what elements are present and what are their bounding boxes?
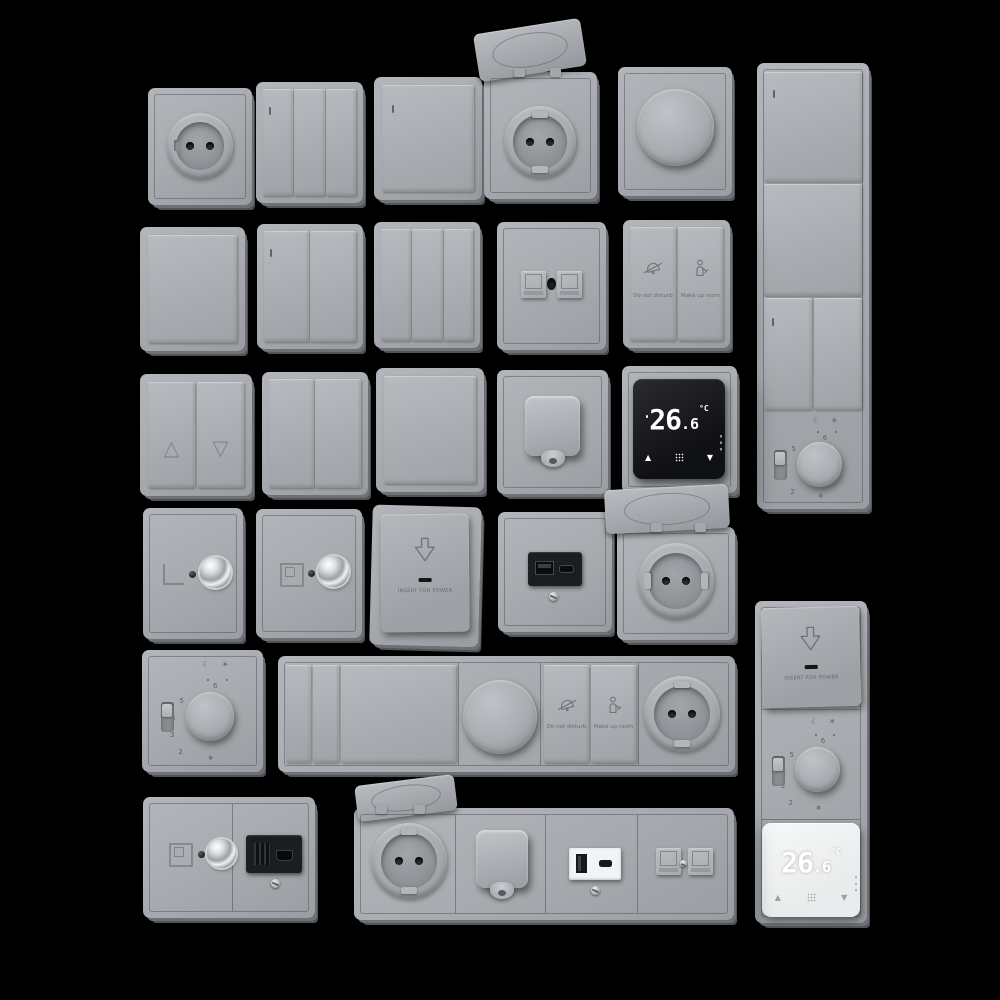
usb-module-white <box>569 848 621 880</box>
ground-clip <box>532 111 548 118</box>
usb-a-tongue <box>578 856 581 871</box>
rocker-do-not-disturb: Do not disturb <box>544 665 589 763</box>
card-slot <box>805 665 818 669</box>
mode-dot <box>817 431 819 433</box>
screw-slot <box>272 881 279 885</box>
pin-hole <box>186 142 194 150</box>
socket-side-slot <box>174 140 179 151</box>
thermostat-dial <box>797 442 842 487</box>
mode-dot <box>815 734 817 736</box>
card-slot <box>419 578 432 582</box>
rocker-label: Do not disturb <box>632 293 674 300</box>
square-emboss <box>169 843 193 867</box>
card-holder-label: INSERT FOR POWER <box>381 588 469 595</box>
analog-thermostat: ☾ ☀ 6 5 4 3 2 ❄ <box>150 656 255 766</box>
spout-hole <box>498 890 506 896</box>
card-pocket: INSERT FOR POWER <box>761 606 862 709</box>
rocker-label: Make up room <box>593 724 635 731</box>
usb-a-tongue <box>538 564 551 568</box>
do-not-disturb-icon <box>641 257 665 279</box>
dial-number: 6 <box>213 682 217 690</box>
lid-hinge <box>414 805 425 814</box>
pin-hole <box>662 577 670 585</box>
jack-step <box>524 291 543 295</box>
digital-thermostat-black: 26.6°C ▲▼ <box>633 379 725 479</box>
day-mode-icon: ☀ <box>221 660 228 669</box>
plate-switch-1gang-b <box>376 368 484 492</box>
screw <box>591 886 600 895</box>
scene-switch-socket-collection: ☾ ☀ 6 5 4 3 2 ❄ Do <box>0 0 1000 1000</box>
socket-recess <box>654 686 710 742</box>
temp-separator: . <box>681 415 690 433</box>
screw-slot <box>681 863 686 866</box>
temperature-display: 26.6°C <box>762 846 860 879</box>
slider-lever <box>162 704 172 717</box>
ground-clip <box>532 166 548 173</box>
menu-dots-icon <box>675 453 684 462</box>
rocker-large <box>764 72 862 182</box>
do-not-disturb-icon <box>555 694 579 716</box>
panel-horizontal-multigang: Do not disturb Make up room <box>278 656 735 772</box>
panel-vertical-hotel: INSERT FOR POWER ☾ ☀ 6 5 4 3 2 ❄ 26.6°C … <box>755 601 867 923</box>
pin-hole <box>415 857 423 865</box>
rocker <box>315 379 361 488</box>
chrome-button <box>200 557 231 588</box>
temp-up-icon: ▲ <box>775 893 781 902</box>
dial-number: 6 <box>823 434 827 442</box>
square-emboss <box>280 563 304 587</box>
cable-outlet-spout <box>476 830 528 888</box>
plate-blank <box>140 227 245 351</box>
data-jack <box>688 848 713 875</box>
ground-clip <box>674 681 690 688</box>
indicator-mark <box>269 107 271 115</box>
usb-a-port <box>576 854 587 873</box>
dial-number: 5 <box>789 751 793 759</box>
round-socket <box>167 113 233 179</box>
lid-emboss <box>490 27 570 73</box>
temp-integer: 26 <box>649 403 681 436</box>
mode-slider <box>772 756 785 786</box>
lid-hinge <box>695 523 706 532</box>
side-vents <box>720 435 723 452</box>
plate-dual-data-outlet <box>497 222 606 350</box>
analog-thermostat: ☾ ☀ 6 5 4 3 2 ❄ <box>762 713 860 815</box>
dial-number: 2 <box>790 488 794 496</box>
blinds-up-icon: △ <box>163 436 179 460</box>
ground-clip <box>674 740 690 747</box>
rocker <box>326 89 356 196</box>
hdmi-port <box>276 850 293 861</box>
temp-down-icon: ▼ <box>841 893 847 902</box>
temp-unit: °C <box>831 847 841 856</box>
indicator-mark <box>773 90 775 98</box>
hdmi-module-black <box>246 835 302 873</box>
plate-key-button-b <box>256 509 362 638</box>
plate-blinds-switch: △ ▽ <box>140 374 252 496</box>
temp-unit: °C <box>699 404 709 413</box>
module-seam <box>762 819 860 820</box>
rocker <box>294 89 325 196</box>
jack-step <box>659 868 678 872</box>
temp-up-icon: ▲ <box>645 453 651 462</box>
rocker <box>764 298 812 410</box>
mode-dot <box>835 431 837 433</box>
rocker <box>263 89 293 196</box>
rocker <box>444 229 473 341</box>
pin-hole <box>206 142 214 150</box>
plate-key-button-a <box>143 508 243 639</box>
chrome-button <box>207 839 236 868</box>
digital-thermostat-white: 26.6°C ▲▼ <box>762 823 860 917</box>
chrome-button <box>318 556 349 587</box>
plate-cable-outlet <box>497 370 608 494</box>
dial-number: 2 <box>788 799 792 807</box>
module-seam <box>540 663 541 765</box>
slider-lever <box>775 452 785 465</box>
pin-hole <box>546 138 554 146</box>
side-vents <box>855 876 858 893</box>
day-mode-icon: ☀ <box>831 416 838 425</box>
module-seam <box>637 815 638 913</box>
plate-socket-flip-lid-b <box>617 527 735 640</box>
screw-slot <box>550 594 557 598</box>
socket-recess <box>648 553 704 609</box>
card-holder-label: INSERT FOR POWER <box>762 674 860 683</box>
mode-dot <box>226 679 228 681</box>
plate-socket-flip-lid <box>484 72 597 199</box>
screw <box>549 592 558 601</box>
ground-clip <box>701 573 708 589</box>
make-up-room-icon <box>602 694 626 716</box>
schuko-socket <box>504 106 576 178</box>
jack-recess <box>692 851 709 866</box>
module-seam <box>762 709 860 710</box>
schuko-socket <box>638 543 714 619</box>
rocker-blank <box>384 376 476 484</box>
rocker <box>310 231 356 342</box>
rocker <box>381 229 411 341</box>
panel-double-key-hdmi <box>143 797 315 918</box>
rocker-large <box>764 184 862 296</box>
thermostat-dial <box>186 692 234 740</box>
pin-hole <box>682 577 690 585</box>
lid-hinge <box>376 805 387 814</box>
data-jack <box>521 271 546 298</box>
usb-module-black <box>528 552 582 586</box>
plate-dimmer <box>618 67 732 196</box>
dial-number: 5 <box>791 445 795 453</box>
jack-recess <box>660 851 677 866</box>
menu-dots-icon <box>807 893 816 902</box>
plate-switch-2gang <box>257 224 363 349</box>
day-mode-icon: ☀ <box>829 717 836 726</box>
dial-number: 6 <box>821 737 825 745</box>
jack-recess <box>561 274 578 289</box>
screw <box>271 879 280 888</box>
rocker-label: Make up room <box>680 293 722 300</box>
schuko-socket <box>371 823 447 899</box>
module-seam <box>638 663 639 765</box>
temp-integer: 26 <box>781 846 813 879</box>
rocker-wide-blank <box>341 665 456 763</box>
card-pocket: INSERT FOR POWER <box>381 514 470 633</box>
rocker <box>382 85 474 192</box>
jack-step <box>560 291 579 295</box>
mode-dot <box>207 679 209 681</box>
socket-recess <box>513 115 566 168</box>
panel-horizontal-sockets <box>354 808 734 920</box>
plate-switch-2gang-b <box>262 372 368 495</box>
plate-thermostat-analog: ☾ ☀ 6 5 4 3 2 ❄ <box>142 650 263 772</box>
make-up-room-icon <box>689 257 713 279</box>
thermostat-buttons: ▲▼ <box>645 453 713 462</box>
dial-number: 2 <box>178 748 182 756</box>
flip-lid-open <box>354 774 458 822</box>
insert-arrow-icon <box>410 536 440 564</box>
mode-dot <box>833 734 835 736</box>
usb-c-port <box>559 565 574 573</box>
corner-emboss <box>163 564 184 585</box>
analog-thermostat: ☾ ☀ 6 5 4 3 2 ❄ <box>764 412 862 502</box>
schuko-socket <box>644 676 720 752</box>
rocker-make-up-room: Make up room <box>678 227 723 341</box>
dial-number: 5 <box>179 697 183 705</box>
rocker-make-up-room: Make up room <box>591 665 636 763</box>
rocker-narrow <box>286 665 311 763</box>
rocker-narrow <box>313 665 339 763</box>
led-dot <box>308 570 315 577</box>
temp-fraction: 6 <box>690 415 699 433</box>
data-jack <box>656 848 681 875</box>
pin-hole <box>688 710 696 718</box>
jack-step <box>691 868 710 872</box>
insert-arrow-icon <box>795 625 826 654</box>
cable-outlet-spout <box>525 396 580 456</box>
pin-hole <box>395 857 403 865</box>
plate-round-socket <box>148 88 252 205</box>
ground-clip <box>401 828 417 835</box>
jack-recess <box>525 274 542 289</box>
spout-hole <box>549 458 557 464</box>
socket-recess <box>381 833 437 889</box>
rocker-do-not-disturb: Do not disturb <box>630 227 676 341</box>
temp-fraction: 6 <box>822 858 831 876</box>
module-seam <box>545 815 546 913</box>
indicator-mark <box>270 249 272 257</box>
plate-card-holder: INSERT FOR POWER <box>369 505 482 648</box>
ground-clip <box>644 573 651 589</box>
panel-vertical-multigang: ☾ ☀ 6 5 4 3 2 ❄ <box>757 63 869 509</box>
temperature-display: 26.6°C <box>633 403 725 436</box>
plate-switch-1gang <box>374 77 482 200</box>
mode-slider <box>161 702 174 732</box>
plate-usb-charger <box>498 512 612 632</box>
screw-slot <box>592 888 599 892</box>
vent-grille <box>254 843 270 865</box>
plate-thermostat-digital-black: 26.6°C ▲▼ <box>622 366 737 493</box>
mode-slider <box>774 450 787 480</box>
module-seam <box>455 815 456 913</box>
rocker <box>814 298 862 410</box>
frost-icon: ❄ <box>816 804 821 812</box>
data-jack <box>557 271 582 298</box>
indicator-mark <box>392 105 394 113</box>
dimmer-knob <box>463 680 537 754</box>
thermostat-dial <box>795 747 840 792</box>
frost-icon: ❄ <box>208 754 213 762</box>
flip-lid-open <box>473 18 587 82</box>
rocker-blank <box>148 235 237 343</box>
temp-down-icon: ▼ <box>707 453 713 462</box>
rocker-blinds-down: ▽ <box>197 382 244 488</box>
thermostat-buttons: ▲▼ <box>775 893 848 902</box>
rocker <box>264 231 309 342</box>
lid-hinge <box>514 68 525 77</box>
usb-a-port <box>535 561 554 575</box>
usb-c-port <box>599 860 612 867</box>
socket-recess <box>176 122 225 171</box>
flip-lid-open <box>604 484 730 534</box>
module-seam <box>458 663 459 765</box>
blinds-down-icon: ▽ <box>212 436 228 460</box>
pin-hole <box>526 138 534 146</box>
rocker-blinds-up: △ <box>148 382 195 488</box>
led-dot <box>189 571 196 578</box>
center-screw <box>680 860 687 867</box>
plate-switch-3gang <box>256 82 363 203</box>
plate-switch-3gang-b <box>374 222 480 348</box>
plate-hotel-switch: Do not disturb Make up room <box>623 220 730 348</box>
night-mode-icon: ☾ <box>813 416 820 425</box>
rocker-label: Do not disturb <box>546 724 588 731</box>
lid-emboss <box>623 491 711 527</box>
dimmer-knob <box>637 89 714 166</box>
night-mode-icon: ☾ <box>811 717 818 726</box>
center-port-hole <box>547 278 556 290</box>
frost-icon: ❄ <box>818 492 823 500</box>
lid-hinge <box>550 68 561 77</box>
night-mode-icon: ☾ <box>203 660 210 669</box>
lid-hinge <box>651 523 662 532</box>
ground-clip <box>401 887 417 894</box>
inner-emboss <box>174 847 184 857</box>
rocker <box>269 379 314 488</box>
indicator-mark <box>772 318 774 326</box>
slider-lever <box>773 758 783 771</box>
rocker <box>412 229 443 341</box>
inner-emboss <box>285 567 295 577</box>
temp-separator: . <box>813 858 822 876</box>
pin-hole <box>668 710 676 718</box>
led-dot <box>198 851 205 858</box>
